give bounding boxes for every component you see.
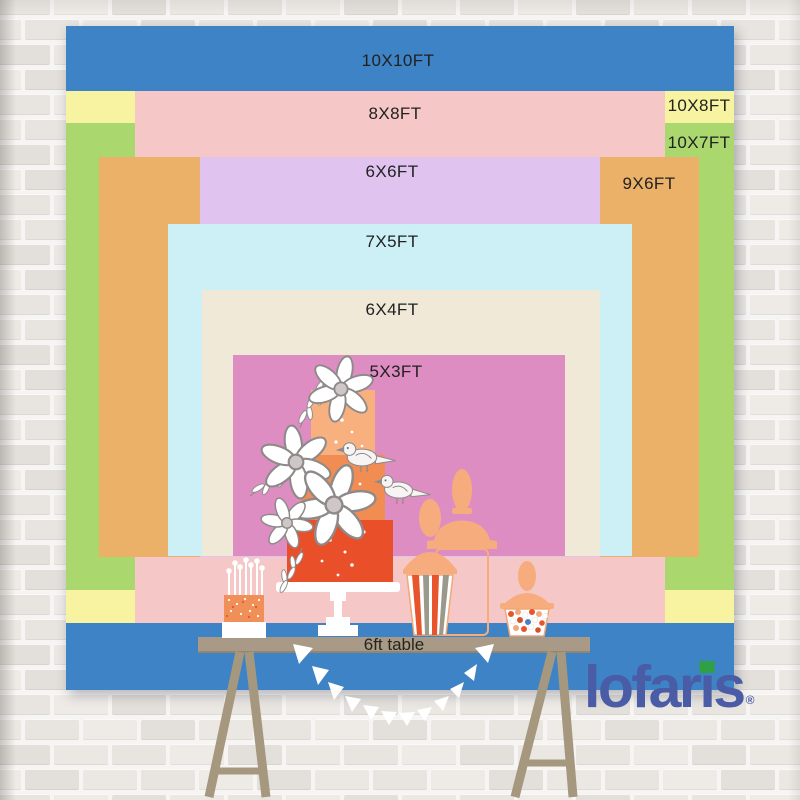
brick <box>779 19 800 40</box>
brick <box>344 694 398 715</box>
brick <box>576 0 630 15</box>
size-label-7x5ft: 7X5FT <box>365 232 418 252</box>
brick <box>228 694 282 715</box>
brick <box>779 619 800 640</box>
brick <box>750 444 800 465</box>
brick <box>750 544 800 565</box>
brick <box>0 169 21 190</box>
brick <box>0 644 50 665</box>
size-label-10x7ft: 10X7FT <box>668 133 731 153</box>
brick <box>228 744 282 765</box>
backdrop-size-chart-poster: 10X10FT10X8FT10X7FT8X8FT9X6FT6X6FT7X5FT6… <box>0 0 800 800</box>
brick <box>576 744 630 765</box>
logo-text-right: s <box>713 654 743 720</box>
brick <box>0 794 50 800</box>
brick <box>460 794 514 800</box>
brick <box>0 394 50 415</box>
brick <box>0 244 50 265</box>
brick <box>547 769 601 790</box>
brick <box>0 69 21 90</box>
brick <box>779 119 800 140</box>
brick <box>0 294 50 315</box>
brick <box>0 0 50 15</box>
brick <box>0 744 50 765</box>
brick <box>750 644 800 665</box>
brick <box>373 719 427 740</box>
brick <box>54 794 108 800</box>
brick <box>315 719 369 740</box>
brick <box>0 319 21 340</box>
brick <box>431 719 485 740</box>
size-label-8x8ft: 8X8FT <box>368 104 421 124</box>
size-label-10x10ft: 10X10FT <box>362 51 435 71</box>
brick <box>750 94 800 115</box>
brick <box>315 769 369 790</box>
brick <box>779 319 800 340</box>
brick <box>112 694 166 715</box>
logo-text-left: lofar <box>584 654 699 720</box>
brick <box>344 0 398 15</box>
size-label-6x6ft: 6X6FT <box>365 162 418 182</box>
brick <box>692 744 746 765</box>
brick <box>489 719 543 740</box>
brick <box>344 794 398 800</box>
brick <box>0 444 50 465</box>
brick <box>663 769 717 790</box>
brick <box>634 794 688 800</box>
brick <box>286 744 340 765</box>
brick <box>750 294 800 315</box>
size-label-10x8ft: 10X8FT <box>668 96 731 116</box>
brick <box>344 744 398 765</box>
brick <box>779 469 800 490</box>
brick <box>750 344 800 365</box>
brick <box>721 719 775 740</box>
brick <box>0 94 50 115</box>
brick <box>0 769 21 790</box>
brick <box>0 694 50 715</box>
brick <box>460 744 514 765</box>
brick <box>402 0 456 15</box>
brick <box>402 694 456 715</box>
logo-registered-mark: ® <box>746 693 755 707</box>
brick <box>779 419 800 440</box>
brick <box>170 794 224 800</box>
brick <box>286 694 340 715</box>
size-label-5x3ft: 5X3FT <box>369 362 422 382</box>
brick <box>402 794 456 800</box>
brick <box>779 269 800 290</box>
brick <box>779 169 800 190</box>
brick <box>0 344 50 365</box>
brick <box>547 719 601 740</box>
brick <box>0 619 21 640</box>
logo-letter-i: ı <box>699 658 713 717</box>
brick <box>170 694 224 715</box>
brick <box>779 219 800 240</box>
brick <box>605 769 659 790</box>
logo-i-dot-square <box>699 661 714 673</box>
brick <box>779 719 800 740</box>
brick <box>750 594 800 615</box>
brick <box>750 744 800 765</box>
brick <box>0 369 21 390</box>
brick <box>663 719 717 740</box>
brick <box>721 769 775 790</box>
brick <box>634 0 688 15</box>
brick <box>692 0 746 15</box>
brick <box>692 794 746 800</box>
brick <box>0 469 21 490</box>
brick <box>460 0 514 15</box>
brick <box>0 594 50 615</box>
brick <box>112 0 166 15</box>
brick <box>576 794 630 800</box>
table-size-label: 6ft table <box>364 635 425 655</box>
brick <box>634 744 688 765</box>
brick <box>750 44 800 65</box>
brick <box>373 769 427 790</box>
brick <box>25 769 79 790</box>
brick <box>54 0 108 15</box>
brick <box>141 719 195 740</box>
brick <box>489 769 543 790</box>
brick <box>286 794 340 800</box>
brick <box>518 794 572 800</box>
brick <box>402 744 456 765</box>
brick <box>0 569 21 590</box>
size-label-9x6ft: 9X6FT <box>622 174 675 194</box>
brick <box>0 194 50 215</box>
brick <box>54 744 108 765</box>
brick <box>0 269 21 290</box>
brick <box>199 769 253 790</box>
brick <box>779 569 800 590</box>
brick <box>460 694 514 715</box>
size-label-6x4ft: 6X4FT <box>365 300 418 320</box>
brick <box>750 394 800 415</box>
brick <box>0 144 50 165</box>
brick <box>750 194 800 215</box>
brick <box>779 519 800 540</box>
lofaris-logo: lofarıs® <box>584 658 752 717</box>
brick <box>141 769 195 790</box>
brick <box>518 694 572 715</box>
brick <box>0 44 50 65</box>
brick <box>0 719 21 740</box>
brick <box>0 19 21 40</box>
brick <box>750 244 800 265</box>
brick <box>779 369 800 390</box>
brick <box>0 669 21 690</box>
brick <box>170 744 224 765</box>
brick <box>257 769 311 790</box>
brick <box>0 119 21 140</box>
brick <box>518 744 572 765</box>
brick <box>170 0 224 15</box>
brick <box>750 694 800 715</box>
brick <box>286 0 340 15</box>
brick <box>112 794 166 800</box>
brick <box>83 769 137 790</box>
brick <box>779 69 800 90</box>
brick <box>779 669 800 690</box>
brick <box>750 144 800 165</box>
brick <box>0 544 50 565</box>
brick <box>112 744 166 765</box>
brick <box>228 794 282 800</box>
dessert-table-top: 6ft table <box>198 637 590 653</box>
brick <box>25 719 79 740</box>
brick <box>779 769 800 790</box>
brick <box>0 419 21 440</box>
brick <box>0 494 50 515</box>
brick <box>750 0 800 15</box>
brick <box>199 719 253 740</box>
brick <box>228 0 282 15</box>
brick <box>750 494 800 515</box>
brick <box>54 694 108 715</box>
brick <box>0 519 21 540</box>
brick <box>750 794 800 800</box>
brick <box>83 719 137 740</box>
backdrop-panel-5x3ft <box>233 355 565 556</box>
brick <box>431 769 485 790</box>
brick <box>605 719 659 740</box>
brick <box>257 719 311 740</box>
brick <box>518 0 572 15</box>
brick <box>0 219 21 240</box>
